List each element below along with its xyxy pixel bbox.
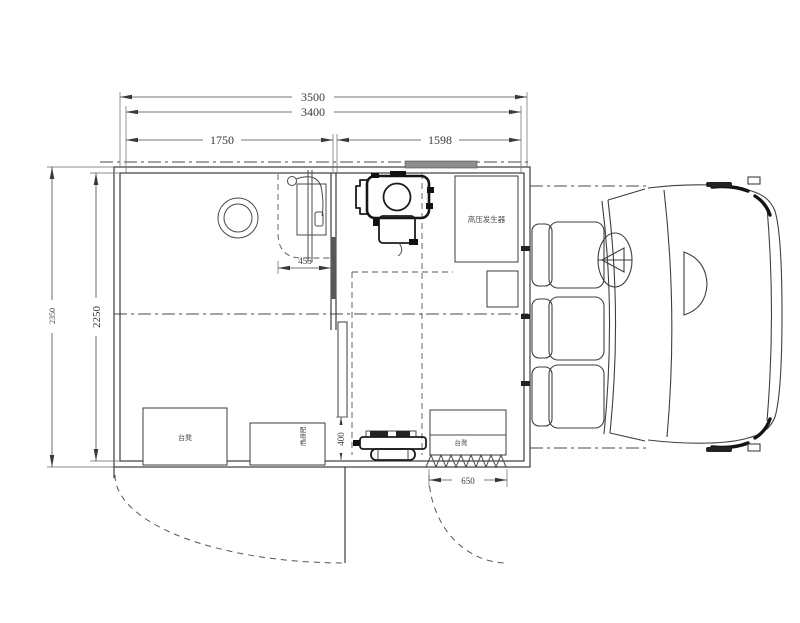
- mirror-bottom: [748, 444, 760, 451]
- tube-tab-top: [390, 171, 406, 177]
- door-left-swing-arc: [115, 475, 345, 563]
- console-body: [360, 437, 426, 449]
- tube-nub-right2: [426, 203, 433, 209]
- tube-tab-top2: [371, 173, 379, 178]
- console-nub: [353, 440, 360, 446]
- seat3-cushion: [549, 365, 604, 428]
- console-handle-ticks: [378, 449, 408, 460]
- hood-detail: [684, 252, 707, 315]
- seat2-cushion: [549, 297, 604, 360]
- wall-tick-3: [521, 381, 530, 386]
- wall-tick-1: [521, 246, 530, 251]
- a-pillar-lines: [608, 189, 645, 441]
- collimator-tab: [409, 239, 418, 245]
- hv-generator-label: 高压发生器: [468, 214, 506, 224]
- power-cabinet-box: [250, 423, 325, 465]
- dim-2350-label: 2350: [48, 308, 57, 324]
- bottom-furniture: 台凳 配电柜 台凳: [143, 408, 506, 467]
- partition-filled-section: [331, 237, 337, 299]
- dim-2250-label: 2250: [91, 306, 103, 329]
- collimator-box: [379, 216, 415, 243]
- bottom-console: [353, 431, 426, 460]
- cab-seats: [532, 222, 604, 428]
- bench-left-label: 台凳: [178, 433, 192, 442]
- seat1-cushion: [549, 222, 604, 288]
- collimator-nub: [373, 219, 379, 226]
- windshield-top-arc: [664, 190, 672, 437]
- bench-right-box: [430, 410, 506, 455]
- van-front-inner-line: [767, 207, 772, 421]
- stand-handle: [315, 212, 323, 226]
- van-body-outline: [648, 185, 782, 443]
- roof-tab-top: [706, 182, 732, 187]
- dim-400-label: 400: [336, 432, 346, 446]
- top-wall-window-bar: [405, 161, 477, 168]
- power-cabinet-label: 配电柜: [298, 426, 306, 447]
- dim-650-label: 650: [461, 476, 475, 486]
- van-cab: [532, 177, 782, 452]
- dim-455-label: 455: [298, 256, 312, 266]
- hv-generator: 高压发生器: [455, 176, 518, 307]
- doors: [115, 467, 507, 563]
- tube-nub-right1: [427, 187, 434, 193]
- dim-1598-label: 1598: [428, 133, 452, 147]
- round-stool: [218, 198, 258, 238]
- sliding-door-panel: [338, 322, 347, 417]
- dim-3400-label: 3400: [301, 105, 325, 119]
- headlight-top-corner-icon: [755, 196, 770, 215]
- ext-left: [47, 167, 120, 467]
- wall-tick-2: [521, 314, 530, 319]
- aux-box: [487, 271, 518, 307]
- mirror-top: [748, 177, 760, 184]
- stool-inner: [224, 204, 252, 232]
- chassis-centerlines: [100, 162, 646, 448]
- windshield-base-2: [602, 201, 610, 434]
- stand-knob: [288, 177, 297, 186]
- tube-port: [384, 184, 411, 211]
- bench-right-label: 台凳: [455, 438, 469, 447]
- headlight-bottom-icon: [712, 443, 748, 448]
- stand-arm-curve: [296, 177, 323, 216]
- floor-plan-drawing: 高压发生器 台凳 配电柜 台凳: [0, 0, 800, 623]
- door-right-swing-arc: [429, 475, 507, 563]
- headlight-top-icon: [712, 187, 748, 192]
- tube-body: [367, 176, 429, 218]
- tube-cable: [398, 243, 402, 256]
- dim-1750-label: 1750: [210, 133, 234, 147]
- floor-plan-canvas: 高压发生器 台凳 配电柜 台凳: [0, 0, 800, 623]
- roof-tab-bottom: [706, 447, 732, 452]
- chest-stand: [278, 170, 331, 262]
- dim-3500-label: 3500: [301, 90, 325, 104]
